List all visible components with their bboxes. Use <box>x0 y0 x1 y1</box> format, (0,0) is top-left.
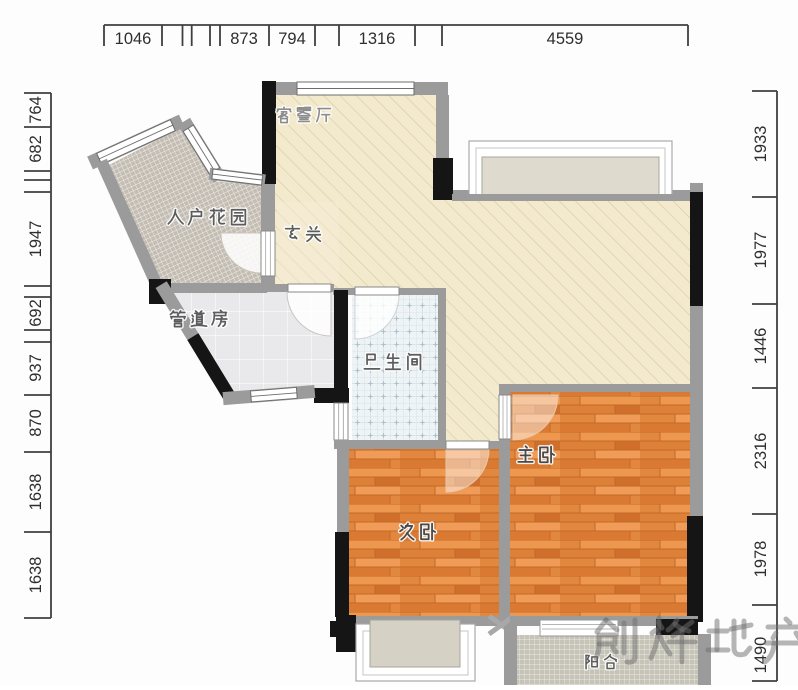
svg-text:870: 870 <box>27 409 45 437</box>
svg-text:1977: 1977 <box>752 232 770 269</box>
svg-text:873: 873 <box>230 30 258 48</box>
svg-text:4559: 4559 <box>547 30 584 48</box>
svg-text:2316: 2316 <box>752 433 770 470</box>
svg-text:1316: 1316 <box>359 30 396 48</box>
svg-text:1978: 1978 <box>752 541 770 578</box>
svg-text:692: 692 <box>27 299 45 327</box>
svg-text:1638: 1638 <box>27 474 45 511</box>
svg-text:937: 937 <box>27 354 45 382</box>
svg-text:1446: 1446 <box>752 328 770 365</box>
svg-text:1046: 1046 <box>115 30 152 48</box>
svg-text:1933: 1933 <box>752 126 770 163</box>
svg-text:794: 794 <box>278 30 306 48</box>
svg-text:764: 764 <box>27 96 45 124</box>
svg-text:1638: 1638 <box>27 557 45 594</box>
svg-text:682: 682 <box>27 135 45 163</box>
svg-text:1947: 1947 <box>27 221 45 258</box>
